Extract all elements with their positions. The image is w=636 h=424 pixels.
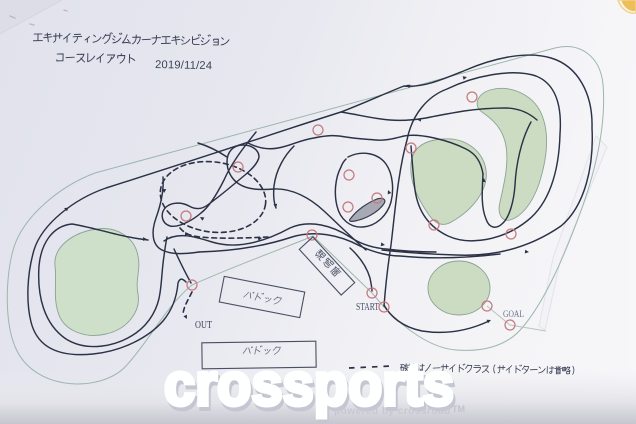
svg-text:OUT: OUT: [195, 320, 212, 331]
svg-text:TM: TM: [452, 404, 465, 414]
svg-text:2019/11/24: 2019/11/24: [155, 59, 212, 72]
svg-text:powered by crossroad: powered by crossroad: [334, 406, 451, 417]
svg-text:GOAL: GOAL: [503, 310, 524, 320]
svg-text:START: START: [356, 302, 379, 313]
